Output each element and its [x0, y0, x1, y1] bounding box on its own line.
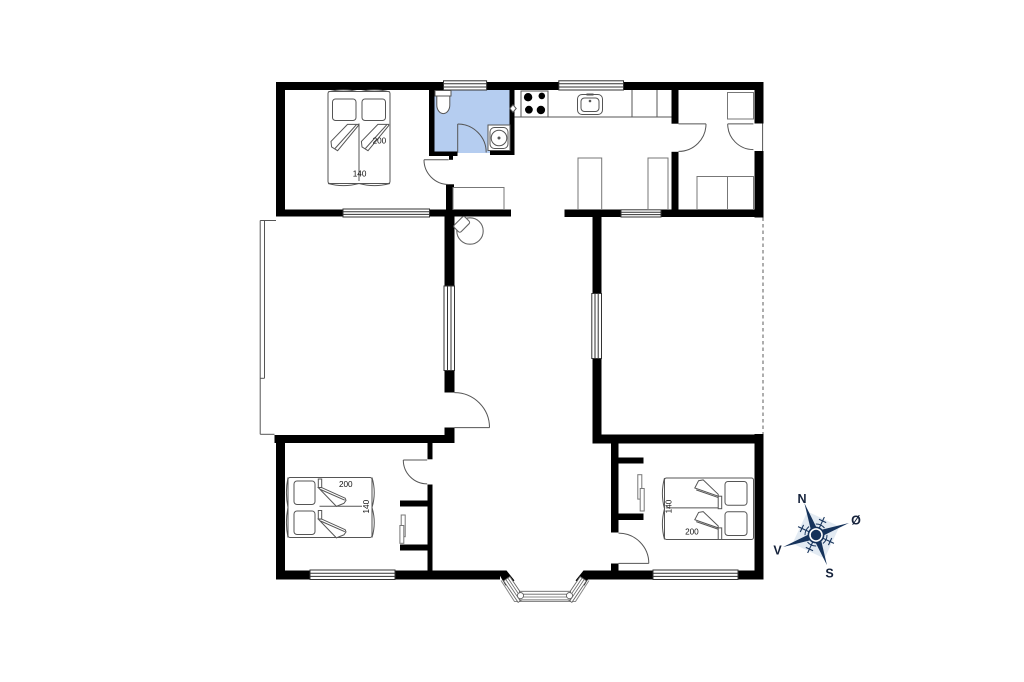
svg-text:140: 140 [362, 499, 371, 513]
svg-text:200: 200 [685, 528, 699, 537]
svg-text:Ø: Ø [851, 514, 861, 528]
svg-text:140: 140 [353, 170, 367, 179]
svg-text:S: S [825, 567, 833, 581]
svg-text:200: 200 [373, 136, 387, 145]
svg-text:200: 200 [339, 480, 353, 489]
svg-text:140: 140 [664, 499, 673, 513]
svg-text:N: N [797, 492, 806, 506]
svg-text:V: V [773, 544, 782, 558]
